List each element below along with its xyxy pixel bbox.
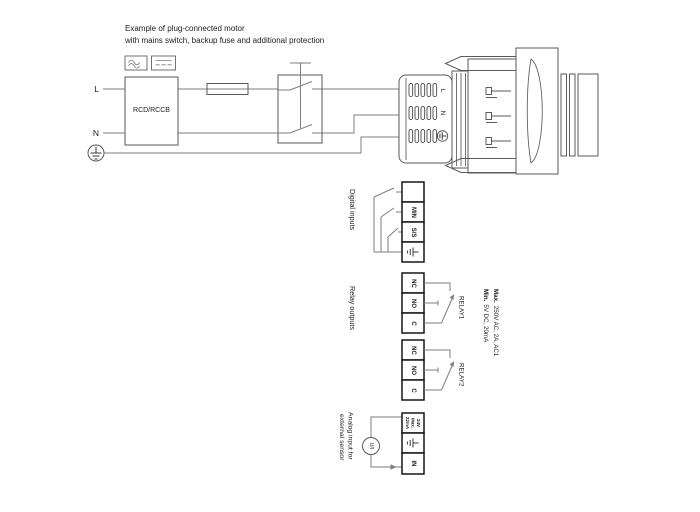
relay-spec-max-prefix: Max. (493, 289, 500, 303)
signal-direction-arrow (391, 464, 397, 470)
relay2-no-label: NO (410, 366, 416, 375)
sensor-supply-wire (371, 417, 402, 438)
external-sensor-symbol: U/I (363, 438, 380, 455)
analog-24v-line2: Max. (411, 418, 416, 428)
digital-terminal-blank (402, 182, 424, 202)
wiring-diagram: Example of plug-connected motor with mai… (0, 0, 700, 512)
relay-spec-max-rest: 250V AC, 2A, AC1 (493, 306, 500, 357)
neutral-label: N (93, 128, 99, 138)
rcd-label: RCD/RCCB (133, 107, 170, 114)
dc-line-icon (156, 61, 172, 65)
plug-connector: L N (399, 48, 598, 174)
motor-thread-rings (561, 74, 575, 156)
motor-connector-body (516, 48, 558, 174)
analog-24v-line1: 24V (416, 419, 421, 427)
digital-terminal-ss-label: S/S (410, 228, 416, 238)
wiring-diagram-page: Example of plug-connected motor with mai… (0, 0, 700, 512)
digital-switch-3 (388, 228, 402, 252)
motor-stub (578, 74, 598, 156)
relay2-c-label: C (410, 388, 416, 393)
relay2-label: RELAY2 (458, 363, 465, 387)
sensor-symbol-label: U/I (368, 443, 374, 450)
analog-input-section: Analog input for external sensor U/I 24V… (338, 412, 424, 474)
dc-symbol-box (152, 56, 176, 70)
relay-outputs-label: Relay outputs (348, 286, 357, 330)
relay-outputs-section: Relay outputs NC NO C RELAY1 NC NO C REL… (348, 273, 500, 400)
ac-wave-icon (129, 60, 140, 68)
relay-spec-min-rest: 5V DC, 20mA (483, 304, 490, 343)
live-label: L (94, 84, 99, 94)
relay-spec-min: Min.5V DC, 20mA (483, 289, 490, 343)
relay2-group: NC NO C RELAY2 (402, 340, 465, 400)
digital-inputs-section: Digital inputs MIN S/S (348, 182, 424, 262)
mains-circuit: L N RCD/RCCB (88, 56, 399, 161)
relay1-label: RELAY1 (458, 296, 465, 320)
relay2-nc-label: NC (410, 346, 416, 355)
relay1-contact (424, 283, 454, 323)
plug-live-label: L (439, 89, 446, 93)
plug-neutral-label: N (439, 111, 446, 116)
relay1-no-label: NO (410, 299, 416, 308)
analog-input-label-line2: external sensor (338, 414, 345, 461)
title-line-1: Example of plug-connected motor (125, 24, 245, 33)
digital-inputs-label: Digital inputs (348, 189, 357, 231)
relay-spec-min-prefix: Min. (483, 289, 490, 302)
analog-24v-line3: 22mA (405, 417, 410, 430)
digital-terminal-min-label: MIN (410, 207, 416, 218)
relay1-c-label: C (410, 321, 416, 326)
relay2-contact (424, 350, 454, 390)
analog-input-label-line1: Analog input for (347, 412, 354, 460)
relay1-nc-label: NC (410, 279, 416, 288)
rcd-rccb-device: RCD/RCCB (125, 77, 178, 145)
relay-spec-max: Max.250V AC, 2A, AC1 (493, 289, 500, 357)
analog-in-label: IN (410, 461, 416, 467)
mains-switch (278, 63, 322, 143)
diagram-title: Example of plug-connected motor with mai… (124, 24, 324, 45)
protective-earth-icon (88, 145, 104, 161)
digital-switch-2 (381, 208, 402, 252)
relay1-group: NC NO C RELAY1 (402, 273, 465, 333)
sensor-signal-wire (371, 455, 402, 468)
title-line-2: with mains switch, backup fuse and addit… (124, 36, 324, 45)
